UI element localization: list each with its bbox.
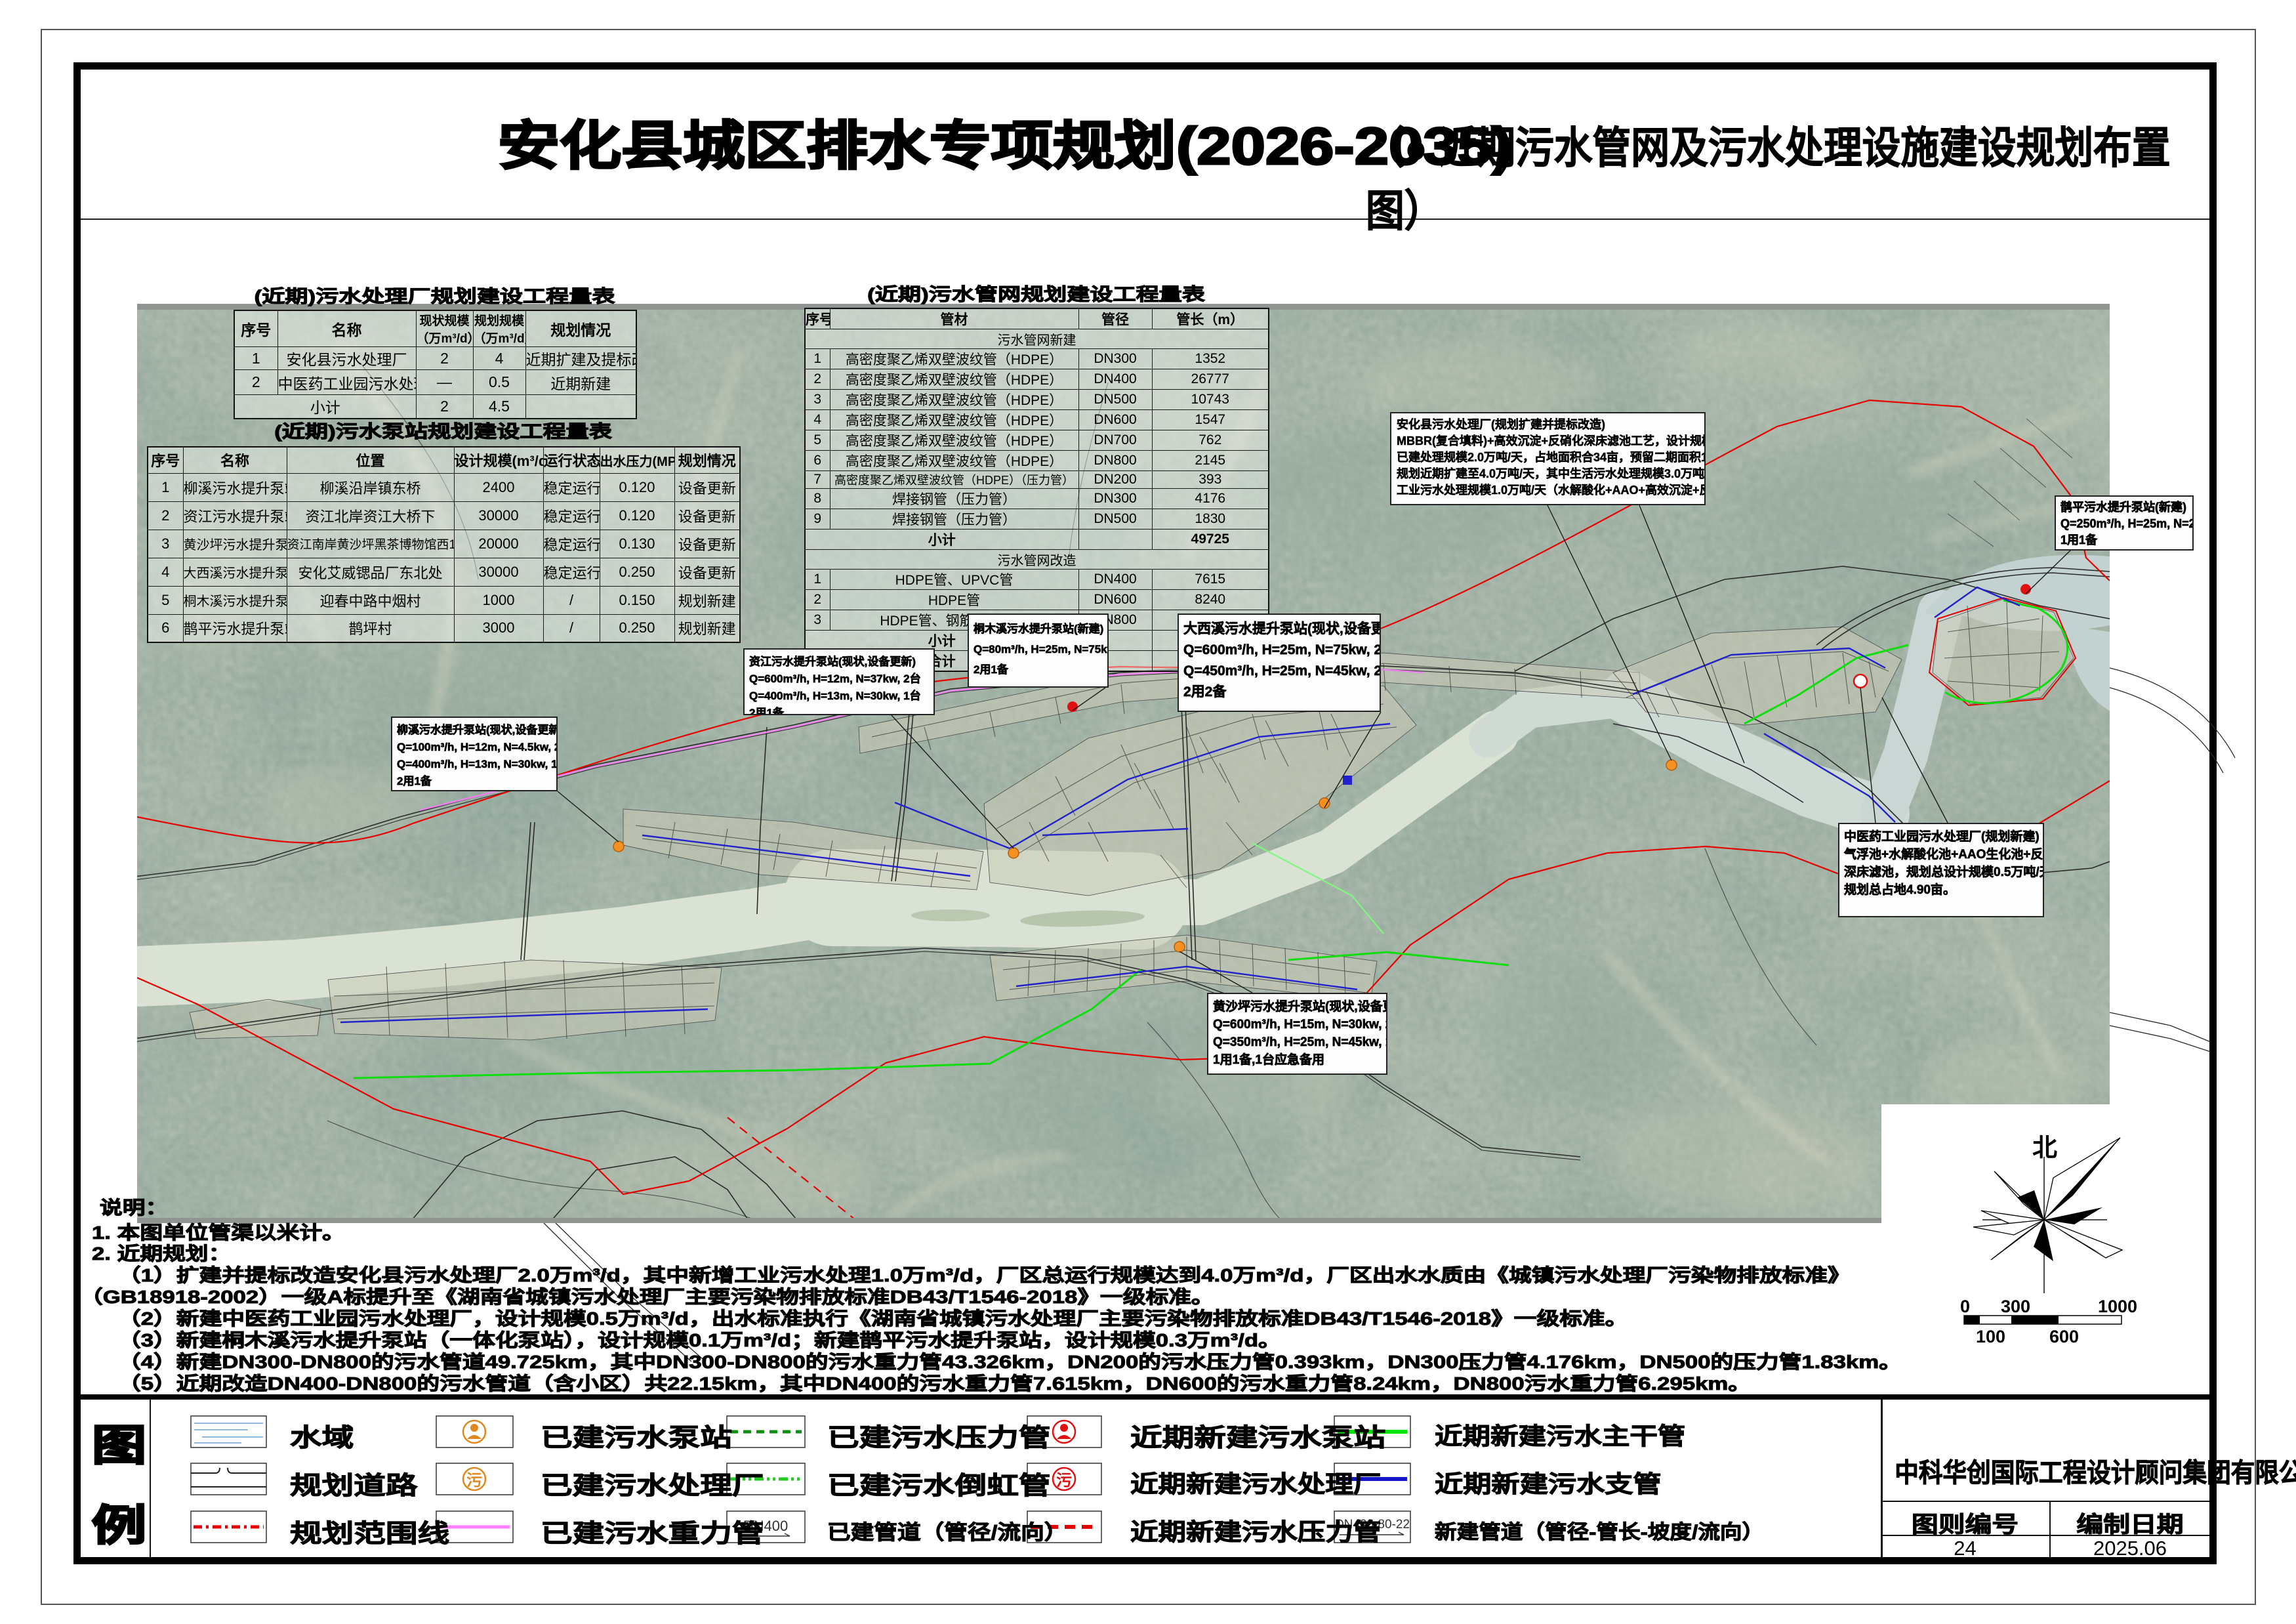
svg-text:北: 北: [2032, 1135, 2057, 1162]
svg-text:0: 0: [1960, 1297, 1970, 1316]
svg-text:污: 污: [466, 1472, 482, 1489]
svg-text:1000: 1000: [2098, 1297, 2137, 1316]
svg-text:100: 100: [1976, 1327, 2005, 1346]
svg-text:300: 300: [2001, 1297, 2030, 1316]
svg-text:污: 污: [1056, 1472, 1072, 1489]
svg-text:600: 600: [2049, 1327, 2079, 1346]
